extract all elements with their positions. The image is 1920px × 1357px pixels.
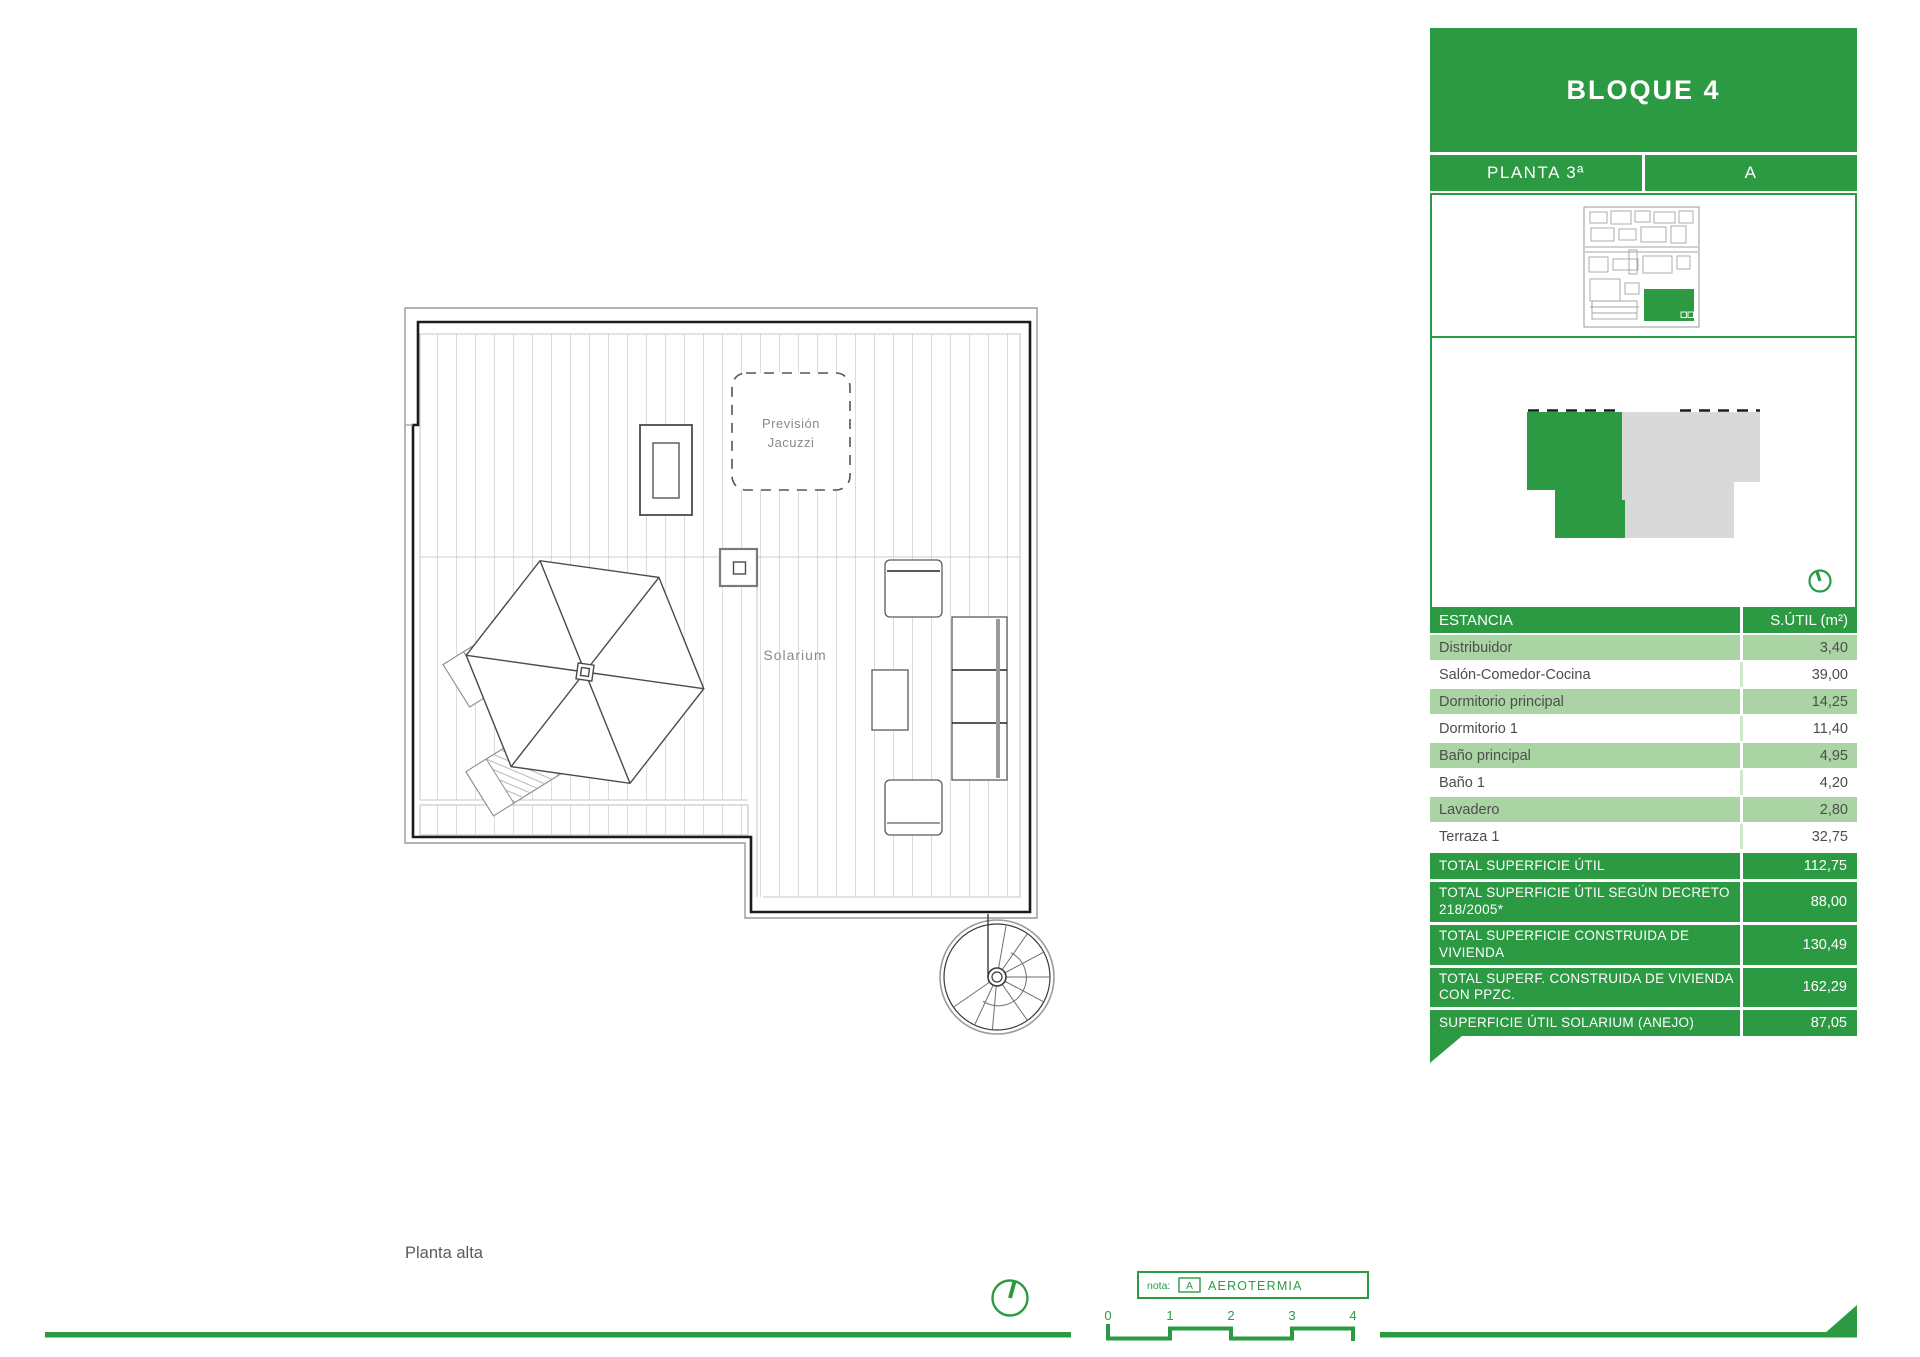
jacuzzi-provision: Previsión Jacuzzi [732, 373, 850, 490]
site-key-plan-drawing [1432, 195, 1855, 336]
solarium-label: Solarium [763, 647, 826, 663]
footer-rule [45, 1305, 1857, 1338]
table-row: Lavadero 2,80 [1430, 797, 1857, 822]
totals-section: TOTAL SUPERFICIE ÚTIL 112,75 TOTAL SUPER… [1430, 853, 1857, 1036]
table-row: Salón-Comedor-Cocina 39,00 [1430, 662, 1857, 687]
column-header-area: S.ÚTIL (m²) [1743, 607, 1857, 633]
compass-icon [993, 1281, 1028, 1316]
column-header-room: ESTANCIA [1430, 607, 1740, 633]
adjacent-unit-shape [1622, 412, 1760, 538]
table-row: Dormitorio principal 14,25 [1430, 689, 1857, 714]
unit-position-drawing [1432, 338, 1855, 605]
jacuzzi-label-line1: Previsión [762, 416, 820, 431]
brochure-page: Previsión Jacuzzi Solarium [0, 0, 1920, 1357]
floor-label: PLANTA 3ª [1430, 155, 1642, 191]
unit-info-panel: BLOQUE 4 PLANTA 3ª A [1430, 28, 1857, 1063]
block-title: BLOQUE 4 [1430, 28, 1857, 152]
table-row: Baño 1 4,20 [1430, 770, 1857, 795]
table-header-row: ESTANCIA S.ÚTIL (m²) [1430, 607, 1857, 633]
table-row: Distribuidor 3,40 [1430, 635, 1857, 660]
jacuzzi-label-line2: Jacuzzi [768, 435, 815, 450]
panel-corner-tail [1430, 1036, 1462, 1063]
scale-tick-label: 3 [1288, 1308, 1295, 1323]
scale-bar: 0 1 2 3 4 [1104, 1308, 1356, 1341]
total-row: TOTAL SUPERFICIE CONSTRUIDA DE VIVIENDA … [1430, 925, 1857, 965]
floor-unit-row: PLANTA 3ª A [1430, 155, 1857, 191]
total-row: TOTAL SUPERF. CONSTRUIDA DE VIVIENDA CON… [1430, 968, 1857, 1008]
total-row: SUPERFICIE ÚTIL SOLARIUM (ANEJO) 87,05 [1430, 1010, 1857, 1036]
scale-tick-label: 2 [1227, 1308, 1234, 1323]
unit-letter: A [1645, 155, 1857, 191]
table-row: Baño principal 4,95 [1430, 743, 1857, 768]
table-row: Terraza 1 32,75 [1430, 824, 1857, 849]
roof-vent [720, 549, 757, 586]
compass-icon [1810, 571, 1831, 592]
note-key: A [1186, 1280, 1193, 1292]
scale-tick-label: 0 [1104, 1308, 1111, 1323]
scale-tick-label: 1 [1166, 1308, 1173, 1323]
floor-name-label: Planta alta [405, 1244, 484, 1262]
table-row: Dormitorio 1 11,40 [1430, 716, 1857, 741]
unit-shape-highlight [1527, 412, 1625, 538]
note-prefix: nota: [1147, 1280, 1170, 1292]
skylight [640, 425, 692, 515]
spiral-staircase [940, 914, 1054, 1034]
unit-position-diagram [1430, 336, 1857, 607]
note-text: AEROTERMIA [1208, 1279, 1303, 1293]
site-key-plan [1430, 193, 1857, 336]
total-row: TOTAL SUPERFICIE ÚTIL SEGÚN DECRETO 218/… [1430, 882, 1857, 922]
scale-tick-label: 4 [1349, 1308, 1356, 1323]
total-row: TOTAL SUPERFICIE ÚTIL 112,75 [1430, 853, 1857, 879]
note-box: nota: A AEROTERMIA [1138, 1272, 1368, 1298]
